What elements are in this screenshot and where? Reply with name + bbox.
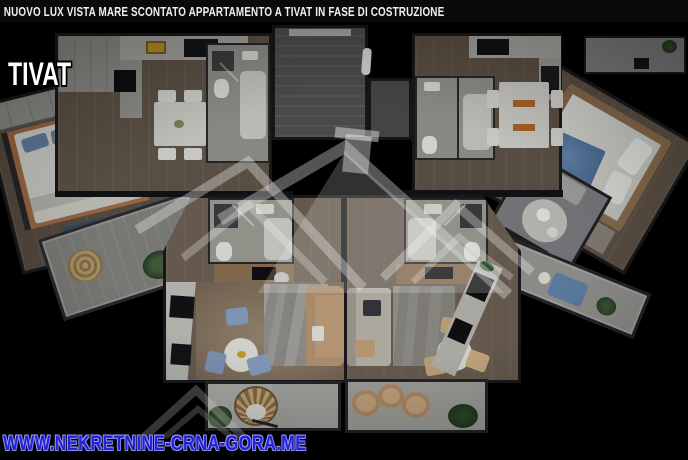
watermark-url: WWW.NEKRETNINE-CRNA-GORA.ME xyxy=(3,432,307,456)
wicker-chair xyxy=(465,349,491,373)
sink xyxy=(242,51,258,60)
core-annex xyxy=(368,78,412,140)
apartment-upper-left xyxy=(55,33,272,196)
toilet xyxy=(214,79,229,98)
bathtub xyxy=(240,71,266,139)
plant xyxy=(478,259,495,273)
balcony-lower-left xyxy=(205,381,341,431)
kitchen-sink xyxy=(170,343,191,365)
dark-furniture xyxy=(634,58,649,69)
stove xyxy=(465,272,494,302)
laptop xyxy=(252,267,276,280)
dining-chair xyxy=(184,90,202,102)
orange-table-runner xyxy=(513,124,535,131)
dining-chair xyxy=(158,90,176,102)
room-top-right xyxy=(584,36,686,74)
plant xyxy=(448,404,478,428)
fruit-bowl xyxy=(237,351,246,358)
yellow-decor xyxy=(146,41,166,54)
tv-screen xyxy=(425,267,453,279)
kitchen-sink xyxy=(447,318,473,345)
bathroom-lower-right xyxy=(404,198,488,264)
stair-core xyxy=(272,25,368,140)
plant xyxy=(208,406,232,428)
orange-table-runner xyxy=(513,100,535,107)
apartment-lower-left xyxy=(163,195,344,383)
location-label: TIVAT xyxy=(8,56,71,93)
sink xyxy=(424,204,442,214)
stove xyxy=(477,39,509,55)
sofa-pillow xyxy=(312,326,324,341)
wicker-chair xyxy=(402,392,430,418)
bathroom-upper-right xyxy=(415,76,495,160)
floorplan-render xyxy=(0,0,688,460)
bathroom-lower-left xyxy=(208,198,294,264)
wicker-chair xyxy=(378,384,404,408)
apartment-lower-right xyxy=(344,195,521,383)
plant xyxy=(662,40,677,53)
dining-chair xyxy=(551,90,563,108)
toilet xyxy=(216,242,232,261)
sink xyxy=(424,82,440,91)
tv-panel xyxy=(114,70,136,92)
dining-table xyxy=(499,82,549,148)
listing-image: NUOVO LUX VISTA MARE SCONTATO APPARTAMEN… xyxy=(0,0,688,460)
blue-lounger xyxy=(547,272,589,308)
dining-chair xyxy=(487,90,499,108)
white-fixture xyxy=(361,48,372,76)
wicker-chair xyxy=(352,390,380,416)
stove xyxy=(169,295,194,319)
bathtub xyxy=(264,218,292,260)
sink xyxy=(256,204,274,214)
table-decor xyxy=(174,120,184,128)
dining-chair xyxy=(184,148,202,160)
balcony-lower-right xyxy=(345,379,488,433)
tan-throw xyxy=(355,340,375,357)
skylight xyxy=(289,29,351,36)
top-title-bar: NUOVO LUX VISTA MARE SCONTATO APPARTAMEN… xyxy=(0,0,688,22)
apartment-upper-right xyxy=(412,33,562,195)
patterned-pillow xyxy=(363,300,381,316)
dining-chair xyxy=(551,128,563,146)
toilet xyxy=(422,136,437,154)
chair-cushion xyxy=(246,404,266,420)
bathtub xyxy=(408,218,436,260)
jute-rug xyxy=(63,245,107,287)
bathroom-upper-left xyxy=(206,43,270,163)
blue-chair xyxy=(225,307,249,326)
balcony-floor xyxy=(272,384,338,428)
bathroom-divider-wall xyxy=(457,78,459,158)
dining-chair xyxy=(487,128,499,146)
dining-chair xyxy=(158,148,176,160)
plant xyxy=(594,294,619,318)
listing-title: NUOVO LUX VISTA MARE SCONTATO APPARTAMEN… xyxy=(0,4,444,19)
